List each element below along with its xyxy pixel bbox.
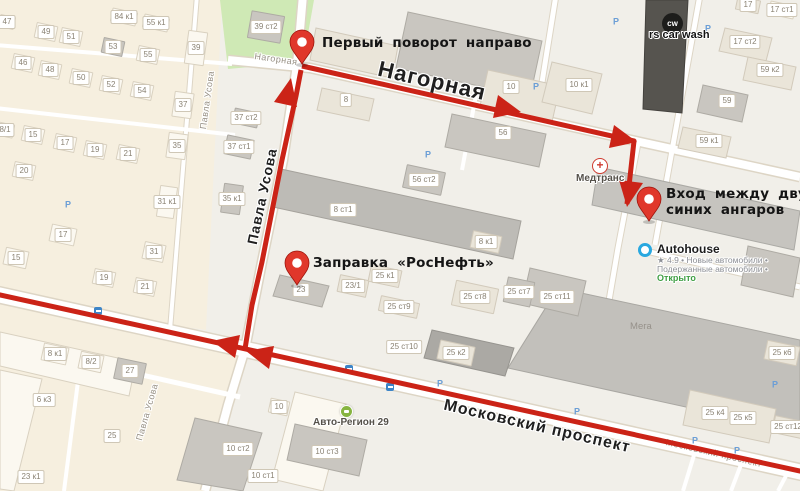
entrance-note: Вход между двухсиних ангаров bbox=[666, 186, 800, 218]
annotation-line: Заправка «РосНефть» bbox=[313, 255, 494, 271]
map-canvas[interactable]: 474951535584 к155 к13939 ст246485052548/… bbox=[0, 0, 800, 491]
annotation-line: синих ангаров bbox=[666, 202, 800, 218]
annotation-line: Первый поворот направо bbox=[322, 35, 532, 51]
first-turn-note: Первый поворот направо bbox=[322, 35, 532, 51]
annotation-line: Вход между двух bbox=[666, 186, 800, 202]
gas-station-note: Заправка «РосНефть» bbox=[313, 255, 494, 271]
annotations-layer: Первый поворот направоВход между двухсин… bbox=[0, 0, 800, 491]
